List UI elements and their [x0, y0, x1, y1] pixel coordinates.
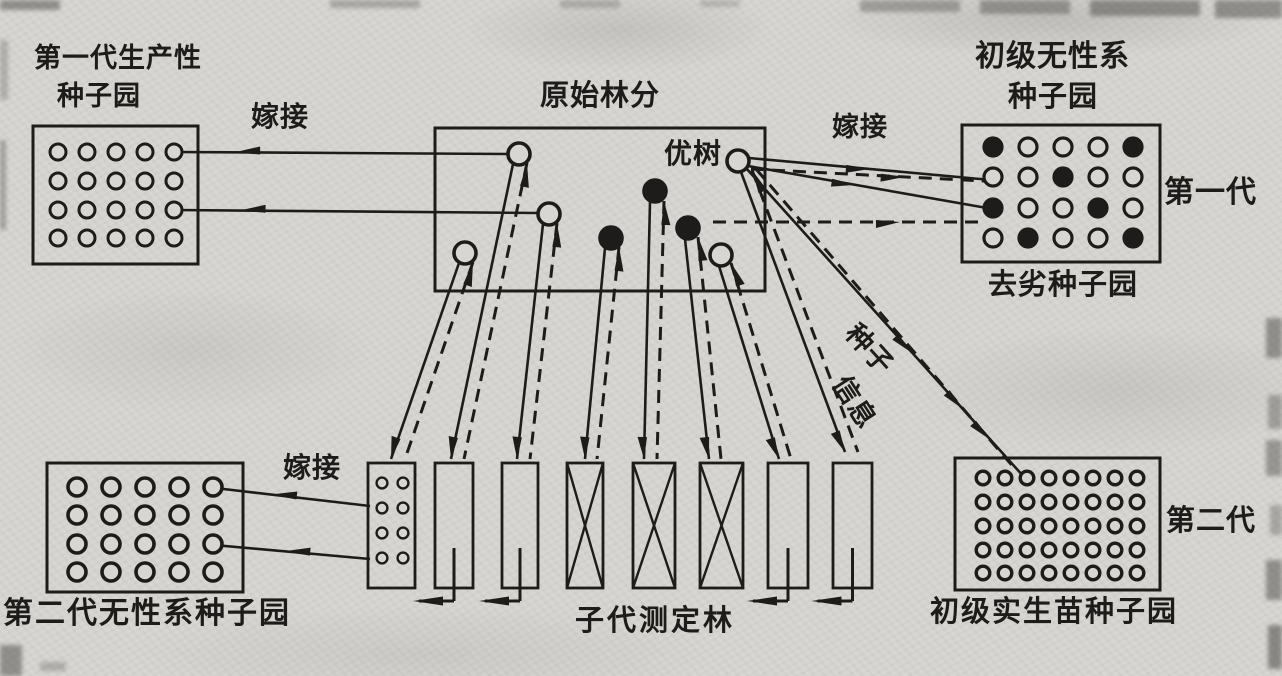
- clonal-orchard-dot: [1019, 138, 1037, 156]
- info-flow-line-from-progeny-test: [657, 201, 664, 459]
- seedling-orchard-dot: [1042, 471, 1056, 485]
- clonal-orchard-dot: [984, 229, 1002, 247]
- first-gen-orchard-dot: [166, 202, 182, 218]
- clonal-orchard-dot: [1054, 199, 1072, 217]
- seedling-orchard-dot: [1020, 543, 1034, 557]
- second-gen-orchard-dot: [204, 478, 222, 496]
- plus-tree-label: 优树: [664, 138, 722, 170]
- print-bleed-mark: [700, 0, 740, 7]
- first-gen-orchard-dot: [50, 202, 66, 218]
- progeny-seedling-dot: [398, 528, 409, 539]
- seedling-orchard-dot: [976, 543, 990, 557]
- clonal-orchard-dot: [984, 168, 1002, 186]
- first-gen-orchard-dot: [166, 173, 182, 189]
- first-gen-orchard-dot: [79, 202, 95, 218]
- stand-tree-circle: [644, 180, 666, 202]
- seed-flow-line-to-progeny-test: [644, 202, 650, 459]
- progeny-seedling-dot: [398, 553, 409, 564]
- stand-tree-circle: [538, 203, 560, 225]
- print-bleed-mark: [1090, 0, 1200, 16]
- clonal-orchard-dot: [1124, 168, 1142, 186]
- first-gen-orchard-dot: [108, 230, 124, 246]
- print-bleed-mark: [40, 662, 66, 671]
- seedling-orchard-dot: [1020, 471, 1034, 485]
- seedling-orchard-dot: [1130, 543, 1144, 557]
- second-gen-orchard-dot: [204, 506, 222, 524]
- second-gen-orchard-dot: [136, 506, 154, 524]
- arrowhead-icon: [391, 436, 401, 459]
- first-gen-orchard-dot: [79, 173, 95, 189]
- print-bleed-mark: [1268, 395, 1282, 429]
- clonal-orchard-dot: [1124, 229, 1142, 247]
- first-gen-orchard-dot: [137, 230, 153, 246]
- first-gen-orchard-dot: [137, 173, 153, 189]
- first-gen-orchard-dot: [166, 230, 182, 246]
- arrowhead-icon: [512, 436, 521, 459]
- clonal-orchard-dot: [984, 138, 1002, 156]
- clonal-orchard-dot: [1124, 199, 1142, 217]
- seedling-orchard-dot: [998, 519, 1012, 533]
- roguing-orchard-label: 去劣种子园: [988, 269, 1138, 302]
- first-gen-orchard-dot: [108, 173, 124, 189]
- progeny-test-forest-label: 子代测定林: [575, 605, 735, 638]
- first-gen-productive-orchard-title-line1: 第一代生产性: [34, 43, 202, 74]
- second-gen-orchard-dot: [102, 506, 120, 524]
- primary-clonal-orchard-title-line2: 种子园: [1008, 81, 1098, 114]
- primary-seedling-orchard-label: 初级实生苗种子园: [930, 596, 1178, 629]
- second-gen-orchard-dot: [204, 535, 222, 553]
- seedling-orchard-dot: [1042, 543, 1056, 557]
- second-generation-label: 第二代: [1166, 505, 1256, 538]
- seedling-orchard-dot: [998, 471, 1012, 485]
- seedling-orchard-dot: [1064, 566, 1078, 580]
- arrowhead-icon: [944, 390, 964, 409]
- first-gen-orchard-dot: [166, 144, 182, 160]
- seedling-orchard-dot: [1020, 495, 1034, 509]
- seedling-orchard-dot: [1108, 519, 1122, 533]
- second-gen-orchard-dot: [204, 563, 222, 581]
- seed-flow-line-to-progeny-test: [685, 239, 709, 459]
- seed-flow-line-to-progeny-test: [719, 266, 779, 459]
- clonal-orchard-dot: [1054, 229, 1072, 247]
- second-gen-orchard-dot: [136, 535, 154, 553]
- arrowhead-icon: [580, 436, 589, 459]
- first-gen-productive-orchard-title-line2: 种子园: [57, 81, 141, 112]
- print-bleed-mark: [0, 140, 6, 230]
- clonal-orchard-dot: [1019, 199, 1037, 217]
- arrowhead-icon: [449, 436, 458, 459]
- print-bleed-mark: [1266, 560, 1282, 600]
- selected-family-arrowhead: [479, 597, 509, 606]
- seedling-orchard-dot: [1086, 495, 1100, 509]
- first-gen-orchard-dot: [79, 230, 95, 246]
- selected-family-arrowhead: [812, 597, 842, 606]
- seedling-orchard-dot: [1108, 543, 1122, 557]
- second-gen-orchard-dot: [102, 563, 120, 581]
- seedling-orchard-dot: [1064, 471, 1078, 485]
- seedling-orchard-dot: [1130, 566, 1144, 580]
- seedling-orchard-dot: [1130, 471, 1144, 485]
- print-bleed-mark: [1268, 625, 1282, 669]
- seedling-orchard-dot: [1042, 495, 1056, 509]
- first-gen-orchard-dot: [50, 144, 66, 160]
- clonal-orchard-dot: [1054, 168, 1072, 186]
- first-gen-orchard-dot: [108, 144, 124, 160]
- first-gen-orchard-dot: [50, 173, 66, 189]
- arrowhead-icon: [638, 437, 647, 459]
- graft-line-to-first-gen-orchard: [174, 210, 538, 213]
- second-gen-orchard-dot: [136, 563, 154, 581]
- print-bleed-mark: [1266, 318, 1282, 358]
- info-flow-line-from-progeny-test: [530, 223, 557, 459]
- info-flow-line-from-progeny-test: [597, 247, 619, 459]
- textbook-figure-page: 第一代生产性 种子园 嫁接 原始林分 优树 嫁接 初级无性系 种子园 第一代 去…: [0, 0, 1282, 676]
- selected-family-arrowhead: [413, 597, 443, 606]
- print-bleed-mark: [0, 0, 60, 10]
- info-arrowhead-at-plus-tree: [552, 223, 561, 248]
- second-gen-orchard-dot: [68, 563, 86, 581]
- primary-clonal-orchard-title-line1: 初级无性系: [975, 40, 1130, 75]
- print-bleed-mark: [0, 40, 8, 100]
- arrowhead-icon: [700, 437, 709, 459]
- seedling-orchard-dot: [998, 495, 1012, 509]
- seedling-orchard-dot: [1086, 566, 1100, 580]
- seed-flow-line-to-progeny-test: [585, 248, 605, 459]
- first-gen-orchard-dot: [108, 202, 124, 218]
- seedling-orchard-dot: [976, 471, 990, 485]
- info-arrowhead-at-plus-tree: [698, 237, 707, 261]
- seedling-orchard-dot: [1020, 566, 1034, 580]
- progeny-seedling-dot: [377, 553, 388, 564]
- print-bleed-mark: [1266, 440, 1282, 476]
- seedling-orchard-dot: [1086, 543, 1100, 557]
- arrowhead-icon: [766, 437, 779, 459]
- second-gen-orchard-dot: [170, 563, 188, 581]
- info-flow-line-from-progeny-test: [464, 163, 527, 459]
- clonal-orchard-dot: [1089, 168, 1107, 186]
- seedling-orchard-dot: [1064, 495, 1078, 509]
- clonal-orchard-dot: [1019, 168, 1037, 186]
- clonal-orchard-dot: [1054, 138, 1072, 156]
- second-gen-orchard-dot: [170, 535, 188, 553]
- progeny-seedling-dot: [398, 478, 409, 489]
- seedling-orchard-dot: [1130, 495, 1144, 509]
- stand-tree-circle: [600, 227, 622, 249]
- seedling-orchard-dot: [1042, 519, 1056, 533]
- first-gen-orchard-dot: [79, 144, 95, 160]
- seedling-orchard-dot: [976, 495, 990, 509]
- stand-tree-circle: [508, 143, 530, 165]
- seedling-orchard-dot: [1108, 566, 1122, 580]
- seedling-orchard-dot: [1086, 471, 1100, 485]
- seedling-orchard-dot: [1086, 519, 1100, 533]
- clonal-orchard-dot: [1089, 138, 1107, 156]
- stand-tree-circle: [677, 217, 699, 239]
- print-bleed-mark: [560, 0, 620, 8]
- seedling-orchard-dot: [1108, 495, 1122, 509]
- graft-label-bottom-left: 嫁接: [283, 452, 341, 484]
- stand-tree-circle: [710, 244, 732, 266]
- info-arrowhead-at-plus-tree: [615, 247, 624, 272]
- seedling-orchard-dot: [1064, 543, 1078, 557]
- print-bleed-mark: [0, 645, 22, 676]
- seed-flow-line-to-progeny-test: [741, 172, 845, 452]
- first-gen-orchard-dot: [50, 230, 66, 246]
- seedling-orchard-dot: [1108, 471, 1122, 485]
- seedling-orchard-dot: [1064, 519, 1078, 533]
- seed-flow-line-to-progeny-test: [517, 224, 543, 459]
- second-gen-clonal-orchard-label: 第二代无性系种子园: [3, 597, 291, 632]
- seedling-orchard-dot: [998, 543, 1012, 557]
- progeny-seedling-dot: [377, 503, 388, 514]
- second-gen-orchard-dot: [68, 506, 86, 524]
- first-generation-label: 第一代: [1164, 176, 1257, 211]
- stand-tree-circle: [454, 242, 476, 264]
- arrowhead-icon: [892, 334, 913, 353]
- clonal-orchard-dot: [984, 199, 1002, 217]
- first-gen-orchard-dot: [137, 202, 153, 218]
- seedling-orchard-dot: [976, 519, 990, 533]
- print-bleed-mark: [330, 0, 420, 8]
- seedling-orchard-dot: [976, 566, 990, 580]
- first-gen-orchard-dot: [137, 144, 153, 160]
- second-gen-orchard-dot: [136, 478, 154, 496]
- arrowhead-icon: [876, 220, 900, 228]
- clonal-orchard-dot: [1089, 199, 1107, 217]
- graft-label-top-right: 嫁接: [832, 112, 888, 143]
- seedling-orchard-dot: [998, 566, 1012, 580]
- seedling-orchard-dot: [1130, 519, 1144, 533]
- graft-line-to-first-gen-orchard: [174, 152, 508, 154]
- selected-family-arrowhead: [747, 597, 777, 606]
- second-gen-orchard-dot: [102, 478, 120, 496]
- seed-flow-line-to-progeny-test: [451, 164, 513, 459]
- print-bleed-mark: [860, 0, 960, 12]
- second-gen-orchard-dot: [102, 535, 120, 553]
- arrowhead-icon: [846, 165, 870, 173]
- second-gen-orchard-dot: [170, 478, 188, 496]
- graft-label-top-left: 嫁接: [251, 101, 309, 133]
- progeny-seedling-dot: [377, 528, 388, 539]
- clonal-orchard-dot: [1019, 229, 1037, 247]
- print-bleed-mark: [980, 0, 1070, 14]
- clonal-orchard-dot: [1089, 229, 1107, 247]
- plus-tree-circle: [727, 150, 749, 172]
- second-gen-orchard-dot: [170, 506, 188, 524]
- info-flow-line-from-progeny-test: [698, 237, 721, 459]
- arrowhead-icon: [831, 431, 845, 452]
- second-gen-orchard-dot: [68, 478, 86, 496]
- second-gen-orchard-dot: [68, 535, 86, 553]
- progeny-seedling-dot: [398, 503, 409, 514]
- original-stand-title: 原始林分: [540, 80, 660, 113]
- seedling-orchard-dot: [1042, 566, 1056, 580]
- clonal-orchard-dot: [1124, 138, 1142, 156]
- print-bleed-mark: [1270, 505, 1282, 535]
- print-bleed-mark: [1215, 0, 1282, 18]
- progeny-seedling-dot: [377, 478, 388, 489]
- arrowhead-icon: [284, 548, 310, 556]
- seedling-orchard-dot: [1020, 519, 1034, 533]
